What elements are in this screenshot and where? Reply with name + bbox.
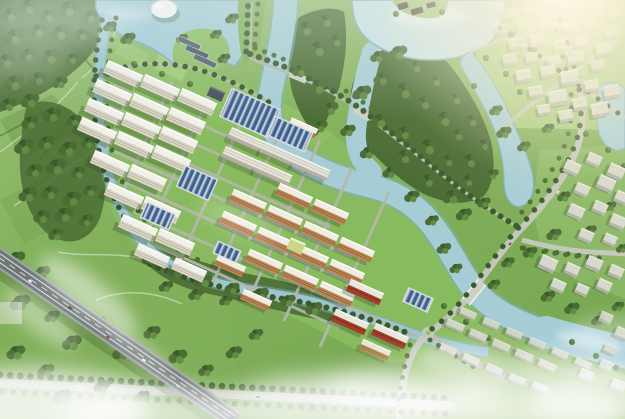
- atmosphere: [0, 0, 625, 419]
- aerial-rendering: [0, 0, 625, 419]
